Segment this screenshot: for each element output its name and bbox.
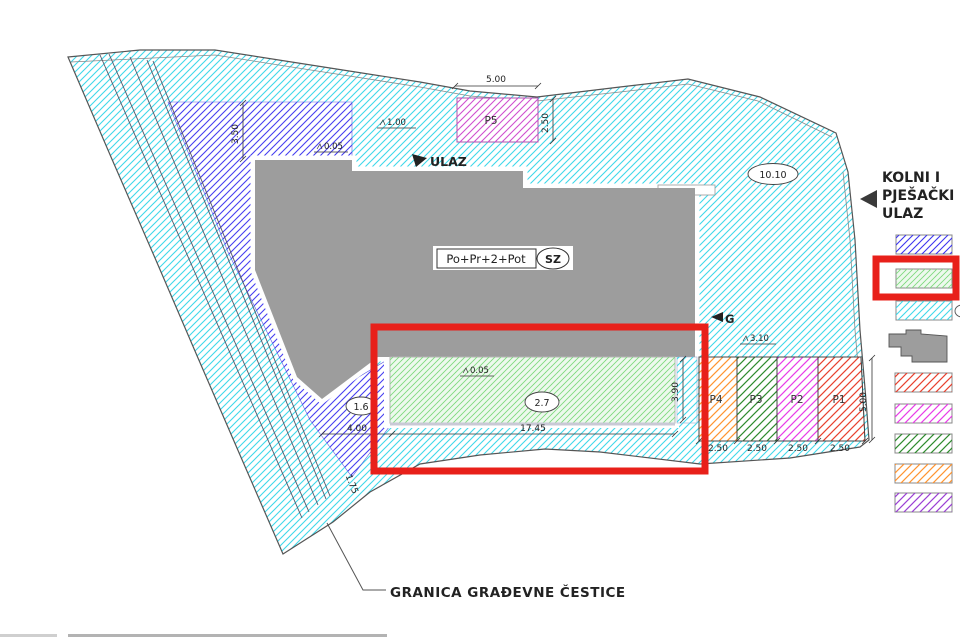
garage-label: G bbox=[725, 312, 734, 326]
green-area-label: 2.7 bbox=[534, 398, 549, 409]
kolni-entrance-note: KOLNI I PJEŠAČKI ULAZ bbox=[860, 170, 954, 222]
level-parking: 3.10 bbox=[750, 334, 769, 344]
p2-label: P2 bbox=[790, 394, 803, 406]
legend bbox=[889, 235, 960, 512]
dim-p5-width: 5.00 bbox=[486, 75, 506, 85]
dim-parking-depth: 5.00 bbox=[859, 392, 869, 412]
building-tag: Po+Pr+2+Pot SZ bbox=[433, 246, 573, 270]
dim-green-depth: 3.90 bbox=[671, 382, 681, 402]
ulaz-label: ULAZ bbox=[430, 154, 467, 169]
dim-stall-4: 2.50 bbox=[830, 444, 850, 454]
kolni-arrow-icon bbox=[860, 190, 877, 208]
dim-notch-width: 4.00 bbox=[347, 424, 367, 434]
p1-label: P1 bbox=[832, 394, 845, 406]
parking-p5: P5 bbox=[457, 98, 538, 142]
dim-stall-3: 2.50 bbox=[788, 444, 808, 454]
dim-setback-left: 3.50 bbox=[231, 124, 241, 144]
dim-p5-depth: 2.50 bbox=[541, 113, 551, 133]
site-plan-drawing: P5 P4 P3 P2 P1 5 bbox=[0, 0, 960, 638]
dim-stall-1: 2.50 bbox=[708, 444, 728, 454]
kolni-line1: KOLNI I bbox=[882, 170, 940, 186]
dim-green-length: 17.45 bbox=[520, 424, 546, 434]
dim-stall-2: 2.50 bbox=[747, 444, 767, 454]
kolni-line3: ULAZ bbox=[882, 206, 923, 222]
kolni-line2: PJEŠAČKI bbox=[882, 186, 954, 204]
level-mid: 0.05 bbox=[324, 142, 343, 152]
orientation-label: SZ bbox=[545, 253, 561, 266]
horizontal-scrollbar[interactable] bbox=[68, 634, 387, 637]
legend-building-icon bbox=[889, 330, 947, 362]
legend-clipped-tag bbox=[955, 305, 960, 317]
boundary-note: GRANICA GRAĐEVNE ČESTICE bbox=[327, 523, 626, 601]
building-use-label: Po+Pr+2+Pot bbox=[446, 252, 526, 266]
site-plan-canvas: P5 P4 P3 P2 P1 5 bbox=[0, 0, 960, 638]
purple-area-label: 1.6 bbox=[353, 402, 368, 413]
boundary-leader-line bbox=[327, 523, 386, 590]
green-area bbox=[390, 357, 675, 424]
p5-label: P5 bbox=[484, 115, 497, 127]
level-green: 0.05 bbox=[470, 366, 489, 376]
p3-label: P3 bbox=[749, 394, 762, 406]
boundary-note-label: GRANICA GRAĐEVNE ČESTICE bbox=[390, 583, 626, 601]
site-area-label: 10.10 bbox=[759, 170, 786, 181]
level-top: 1.00 bbox=[387, 118, 406, 128]
p4-label: P4 bbox=[709, 394, 722, 406]
bottom-bar-segment bbox=[0, 634, 57, 637]
